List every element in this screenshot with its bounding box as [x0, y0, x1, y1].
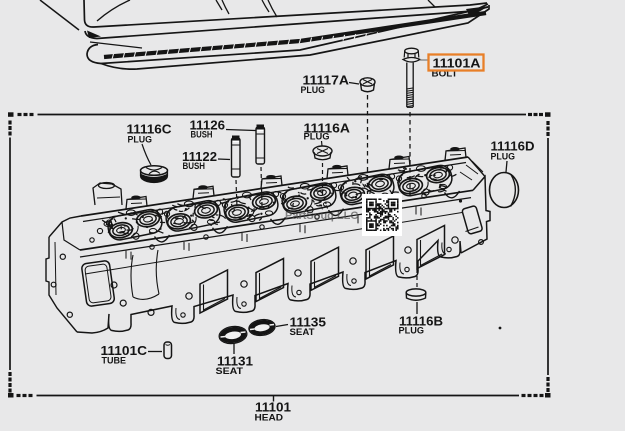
svg-text:HEAD: HEAD — [255, 413, 284, 423]
svg-text:TUBE: TUBE — [102, 356, 127, 366]
svg-text:BUSH: BUSH — [191, 130, 213, 140]
svg-text:PLUG: PLUG — [491, 152, 516, 162]
svg-text:PartSouq LLC: PartSouq LLC — [285, 210, 358, 222]
svg-text:BUSH: BUSH — [183, 161, 206, 171]
svg-text:PLUG: PLUG — [128, 135, 153, 145]
svg-text:PLUG: PLUG — [301, 85, 326, 95]
svg-text:SEAT: SEAT — [216, 366, 244, 376]
svg-text:SEAT: SEAT — [290, 327, 315, 337]
svg-text:PLUG: PLUG — [399, 326, 425, 336]
svg-text:PLUG: PLUG — [304, 132, 330, 142]
